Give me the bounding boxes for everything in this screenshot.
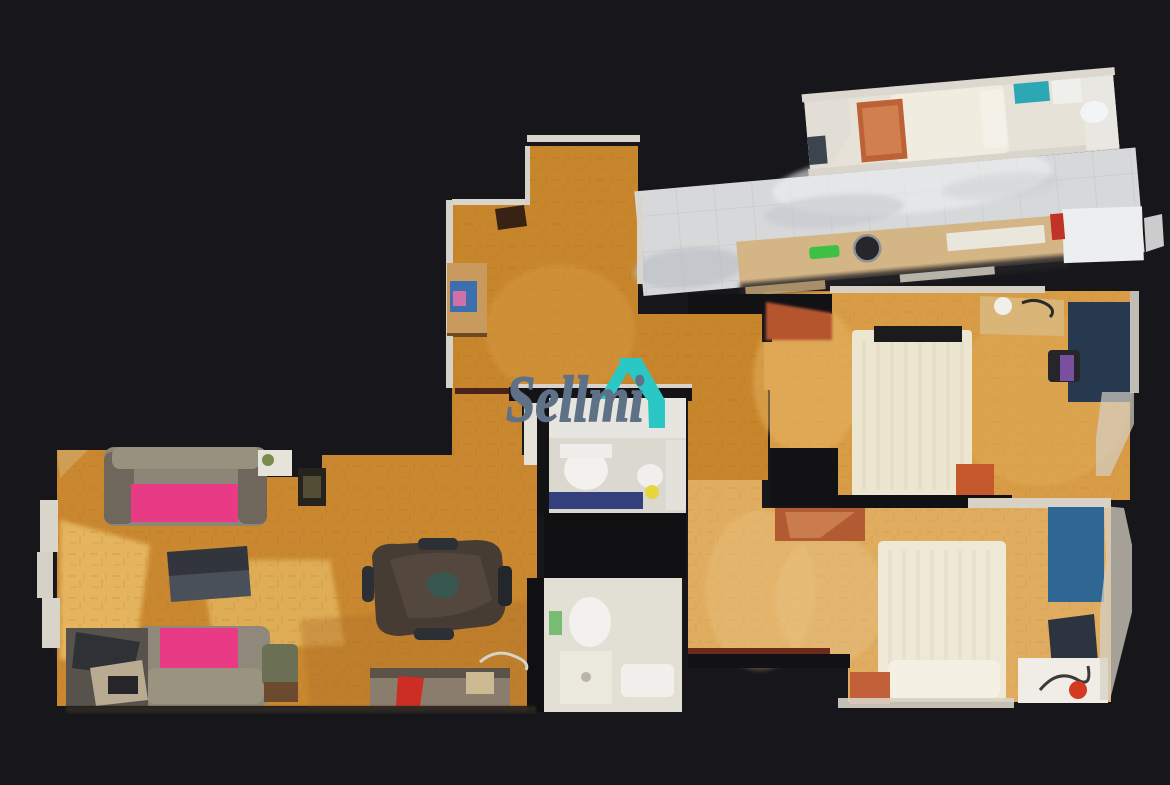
- svg-text:Sellmi: Sellmi: [506, 363, 645, 436]
